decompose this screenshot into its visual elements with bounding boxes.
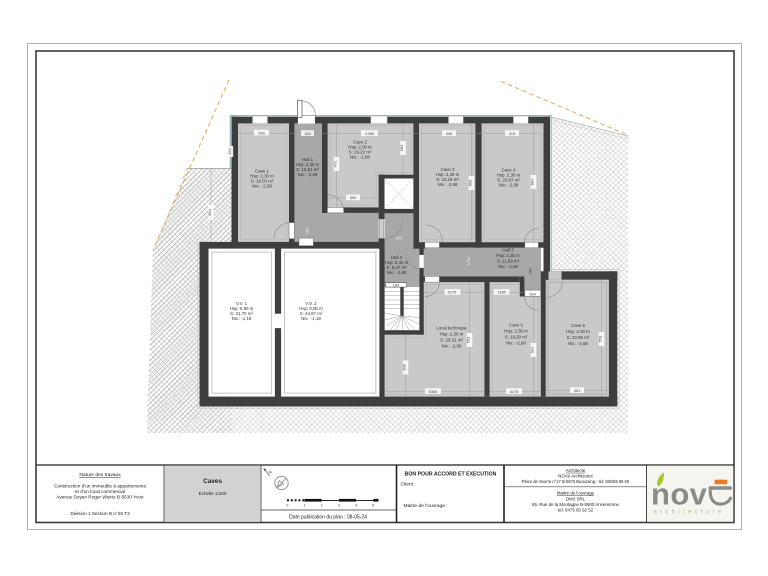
svg-text:553: 553 <box>598 336 603 343</box>
svg-text:553: 553 <box>466 337 471 344</box>
svg-text:Niv.: -2,68: Niv.: -2,68 <box>298 172 318 177</box>
svg-text:S: 19,20 m²: S: 19,20 m² <box>505 335 528 340</box>
svg-text:Maitre de l'ouvrage: Maitre de l'ouvrage <box>557 491 595 496</box>
svg-text:3: 3 <box>338 504 340 508</box>
svg-text:164: 164 <box>393 283 400 288</box>
svg-text:Cave 6: Cave 6 <box>571 323 585 328</box>
svg-text:S: 11,69 m²: S: 11,69 m² <box>497 259 520 264</box>
svg-text:Niv.: -2,68: Niv.: -2,68 <box>438 182 458 187</box>
svg-text:0: 0 <box>287 504 289 508</box>
svg-text:300: 300 <box>350 195 357 200</box>
svg-text:Niv.: -2,68: Niv.: -2,68 <box>387 270 407 275</box>
svg-text:tel: 0475 65 92 52: tel: 0475 65 92 52 <box>558 508 594 513</box>
svg-text:Niv.: -2,68: Niv.: -2,68 <box>506 341 526 346</box>
svg-text:Hsp: 2,30 m: Hsp: 2,30 m <box>440 332 464 337</box>
svg-text:architecture: architecture <box>654 509 725 515</box>
svg-text:Niv.: -2,68: Niv.: -2,68 <box>442 344 462 349</box>
svg-text:349: 349 <box>446 131 453 136</box>
svg-text:160: 160 <box>304 131 311 136</box>
svg-text:263: 263 <box>528 268 533 275</box>
svg-text:1185: 1185 <box>497 290 505 295</box>
svg-text:Nature des travaux: Nature des travaux <box>79 472 121 478</box>
svg-text:Echelle 1/100: Echelle 1/100 <box>199 491 227 496</box>
svg-text:Niv.: -2,68: Niv.: -2,68 <box>568 341 588 346</box>
svg-text:Date publication du plan : 08-: Date publication du plan : 08-05-24 <box>289 514 367 520</box>
svg-text:5305: 5305 <box>429 389 438 394</box>
svg-text:Architecte: Architecte <box>566 468 586 473</box>
svg-text:524: 524 <box>530 346 535 353</box>
svg-text:Construction d'un immeuble à a: Construction d'un immeuble à appartement… <box>54 484 146 489</box>
svg-text:163: 163 <box>305 228 310 235</box>
svg-text:4785: 4785 <box>365 131 374 136</box>
svg-text:2: 2 <box>321 504 323 508</box>
svg-text:NOVé Architectes: NOVé Architectes <box>558 473 593 478</box>
svg-text:164: 164 <box>529 292 536 297</box>
svg-text:Place de Seurre n°17 B-5570 Be: Place de Seurre n°17 B-5570 Beauraing - … <box>522 479 630 484</box>
svg-text:653: 653 <box>468 180 473 187</box>
svg-text:Hsp: 2,30 m: Hsp: 2,30 m <box>566 329 590 334</box>
svg-text:Hsp: 2,30 m: Hsp: 2,30 m <box>496 253 520 258</box>
svg-text:Hsp: 2,30 m: Hsp: 2,30 m <box>504 329 528 334</box>
svg-text:4: 4 <box>355 504 357 508</box>
svg-text:315: 315 <box>509 131 516 136</box>
svg-text:Niv.: -2,68: Niv.: -2,68 <box>498 264 518 269</box>
svg-text:Cave 5: Cave 5 <box>509 323 523 328</box>
svg-text:Niv.: -2,68: Niv.: -2,68 <box>252 184 272 189</box>
svg-text:290: 290 <box>258 130 265 135</box>
svg-text:S: 22,96 m²: S: 22,96 m² <box>567 335 590 340</box>
svg-text:154: 154 <box>227 147 232 154</box>
svg-text:Client :: Client : <box>401 482 416 488</box>
svg-text:654: 654 <box>207 208 212 215</box>
svg-text:DM3 SRL: DM3 SRL <box>566 497 586 502</box>
svg-text:351: 351 <box>574 388 581 393</box>
svg-text:Maitre de l'ouvrage :: Maitre de l'ouvrage : <box>404 503 448 509</box>
svg-text:1760: 1760 <box>466 256 471 265</box>
svg-text:664: 664 <box>530 178 535 185</box>
svg-text:et d'un local commercial: et d'un local commercial <box>75 489 125 494</box>
svg-text:Niv.: -1,18: Niv.: -1,18 <box>301 316 321 321</box>
svg-text:3175: 3175 <box>448 290 457 295</box>
svg-text:3175: 3175 <box>510 389 519 394</box>
svg-text:Niv.: -1,18: Niv.: -1,18 <box>232 316 252 321</box>
svg-text:5: 5 <box>372 504 374 508</box>
svg-text:1: 1 <box>304 504 306 508</box>
svg-text:S: 28,31 m²: S: 28,31 m² <box>440 338 463 343</box>
svg-text:Niv.: -2,68: Niv.: -2,68 <box>499 183 519 188</box>
svg-text:65, Rue de la Montagne B-5500: 65, Rue de la Montagne B-5500 Anseremme <box>532 502 619 507</box>
svg-text:160: 160 <box>395 236 402 241</box>
svg-text:Niv.: -2,68: Niv.: -2,68 <box>350 155 370 160</box>
svg-text:472: 472 <box>333 161 338 168</box>
svg-text:Avenue Doyen Roger Woine B-553: Avenue Doyen Roger Woine B-5530 Yvoir <box>56 495 144 500</box>
svg-text:Local technique: Local technique <box>436 326 467 331</box>
svg-text:BON POUR ACCORD ET EXECUTION: BON POUR ACCORD ET EXECUTION <box>405 472 497 478</box>
svg-text:Caves: Caves <box>203 478 222 485</box>
svg-text:Division 1 Section B n°29 T3: Division 1 Section B n°29 T3 <box>70 511 130 516</box>
svg-text:283: 283 <box>399 145 404 152</box>
svg-text:356: 356 <box>402 364 407 371</box>
svg-text:Hall 3: Hall 3 <box>502 248 514 253</box>
